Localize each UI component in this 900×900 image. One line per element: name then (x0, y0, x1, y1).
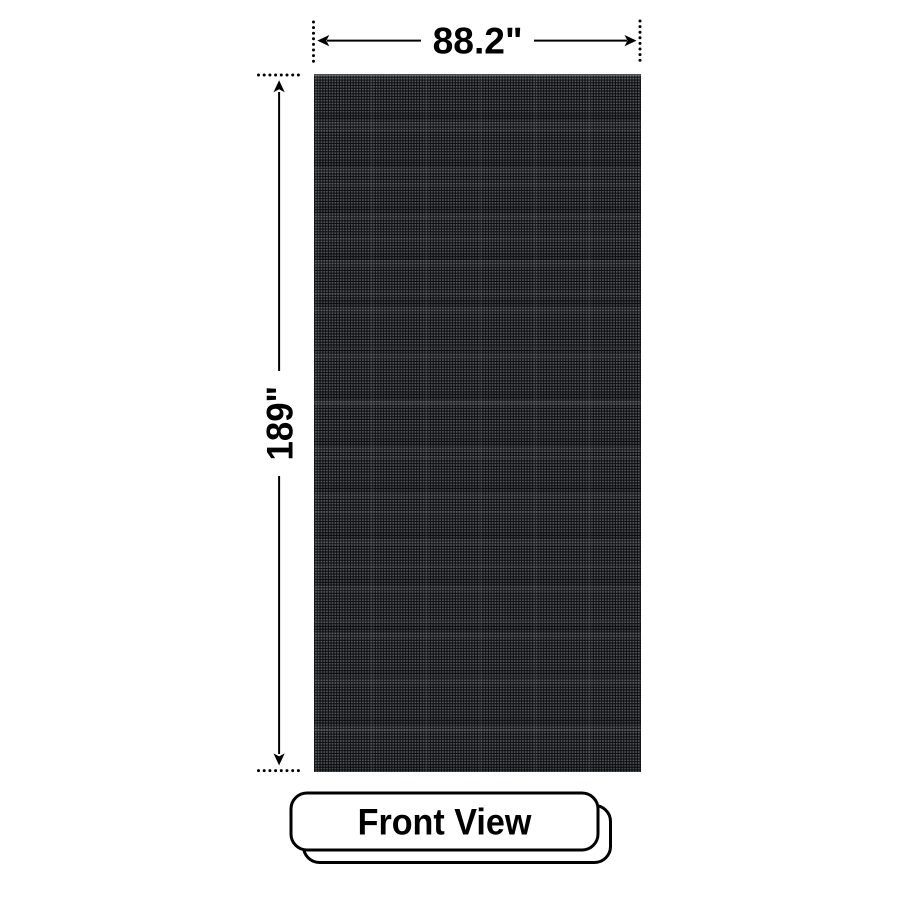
svg-text:Front View: Front View (358, 800, 533, 842)
svg-text:88.2": 88.2" (433, 20, 523, 62)
svg-text:189": 189" (258, 386, 300, 461)
